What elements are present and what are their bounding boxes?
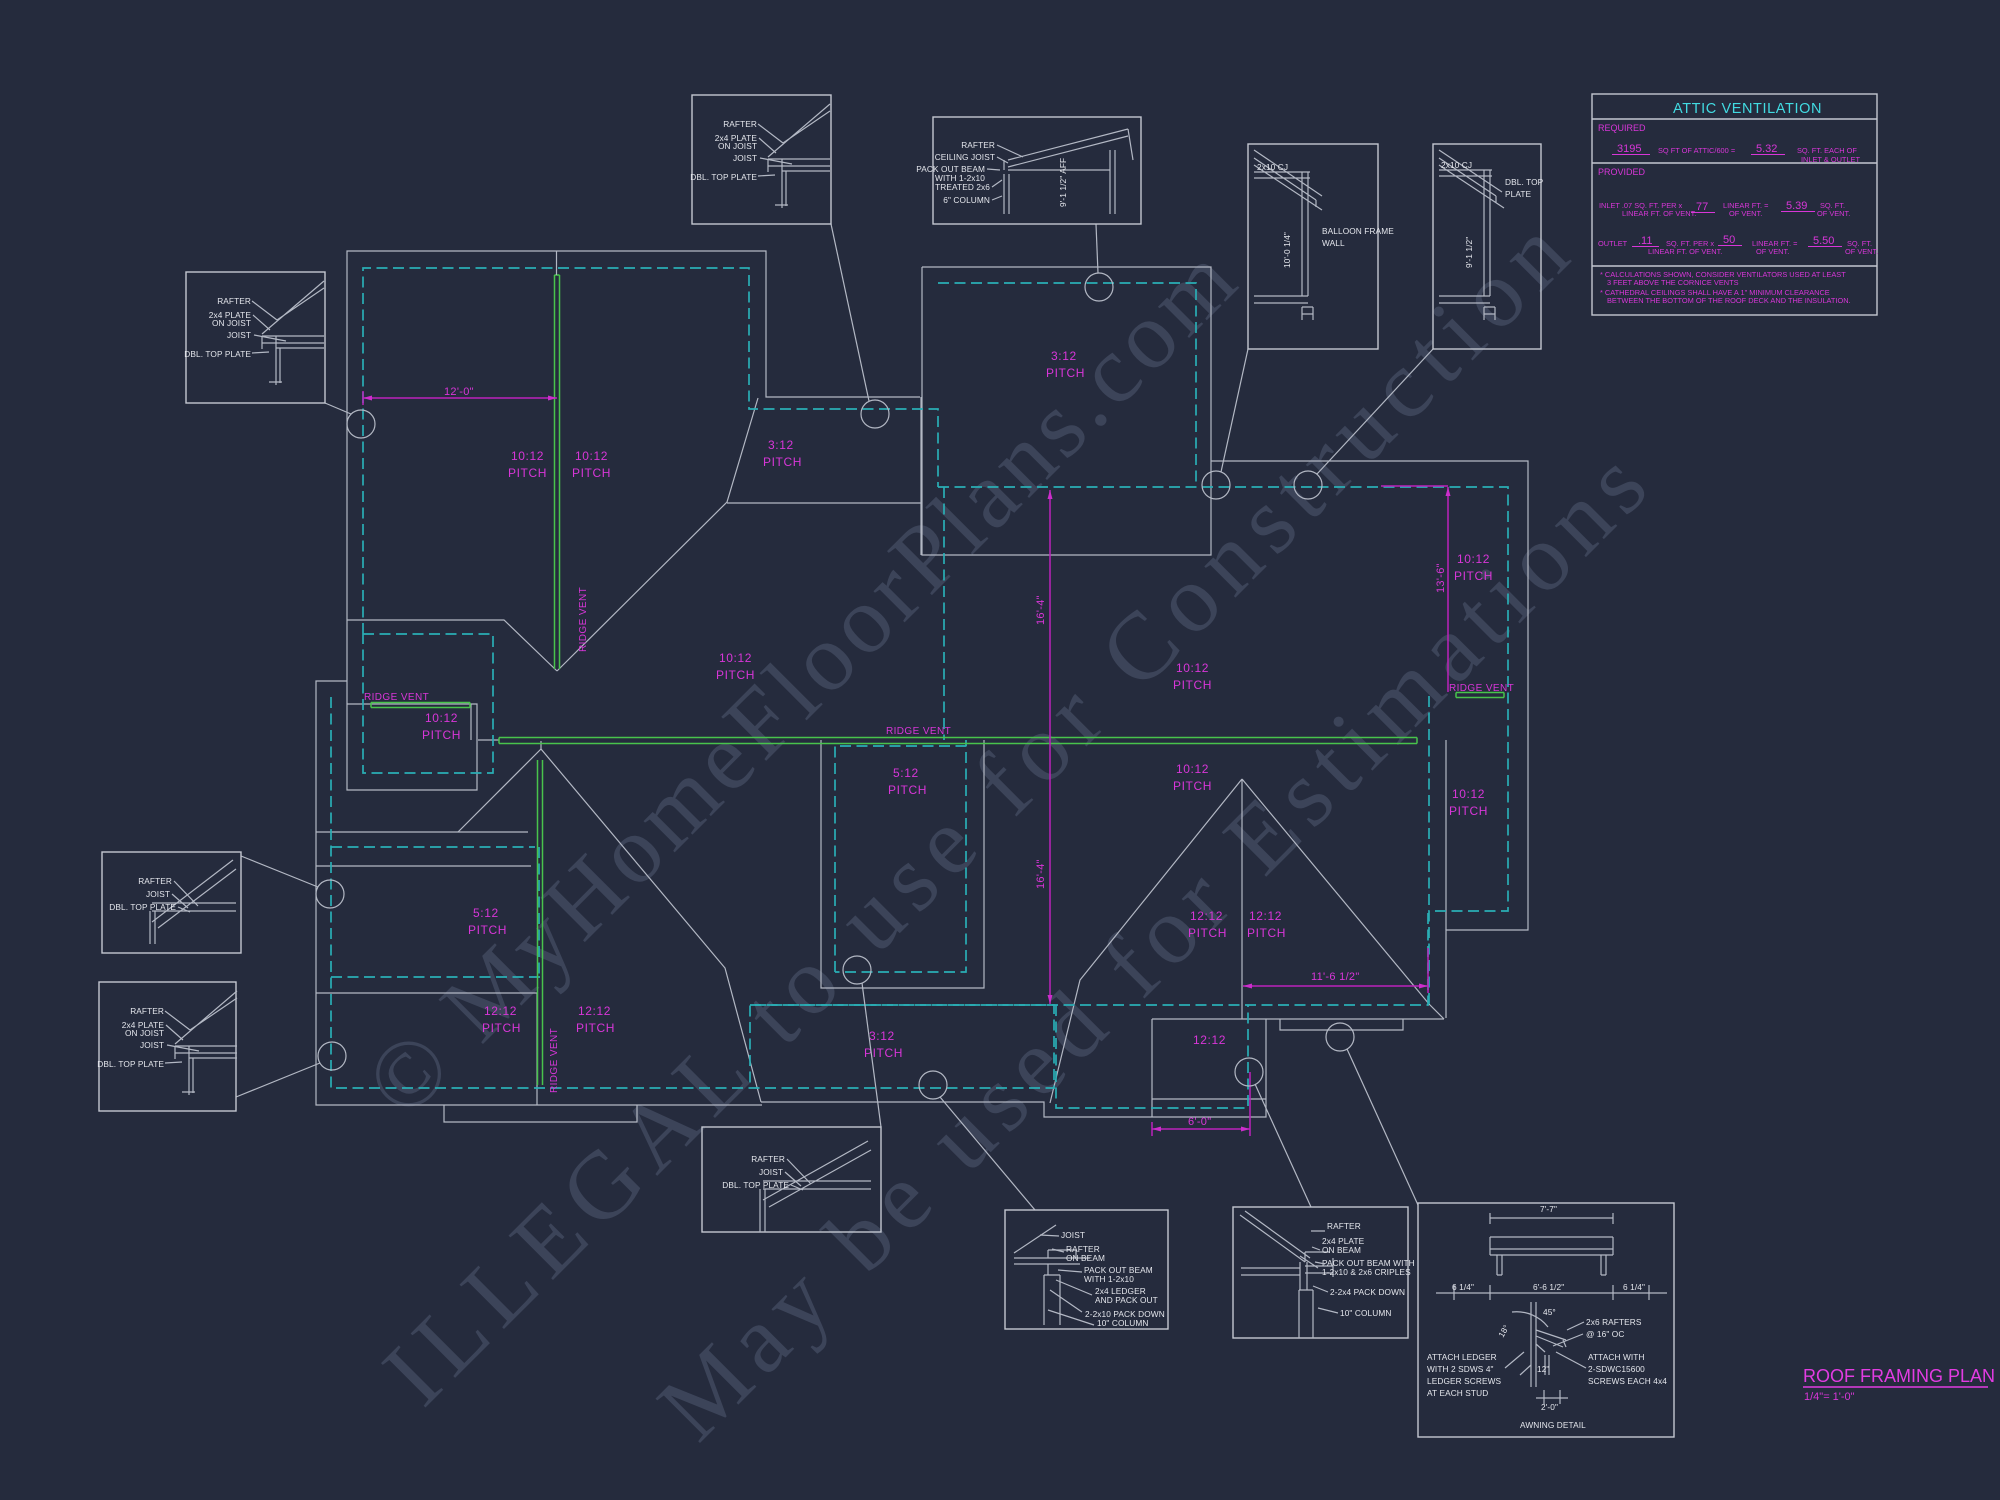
- svg-text:10:12: 10:12: [425, 711, 458, 725]
- svg-text:5.50: 5.50: [1813, 235, 1834, 247]
- svg-text:3 FEET ABOVE THE CORNICE VENTS: 3 FEET ABOVE THE CORNICE VENTS: [1607, 278, 1739, 287]
- svg-text:12:12: 12:12: [1193, 1033, 1226, 1047]
- svg-text:LEDGER SCREWS: LEDGER SCREWS: [1427, 1376, 1502, 1386]
- svg-text:6'-0": 6'-0": [1188, 1116, 1211, 1128]
- svg-text:OF VENT.: OF VENT.: [1817, 209, 1850, 218]
- svg-text:10:12: 10:12: [575, 449, 608, 463]
- svg-text:5:12: 5:12: [893, 766, 919, 780]
- svg-text:12": 12": [1537, 1364, 1549, 1374]
- svg-text:ON BEAM: ON BEAM: [1066, 1253, 1105, 1263]
- svg-text:RIDGE VENT: RIDGE VENT: [364, 692, 429, 703]
- svg-text:5:12: 5:12: [473, 906, 499, 920]
- svg-text:DBL. TOP PLATE: DBL. TOP PLATE: [109, 902, 176, 912]
- svg-text:11'-6 1/2": 11'-6 1/2": [1311, 971, 1360, 983]
- svg-text:DBL. TOP PLATE: DBL. TOP PLATE: [184, 349, 251, 359]
- svg-text:2-SDWC15600: 2-SDWC15600: [1588, 1364, 1645, 1374]
- svg-text:@ 16" OC: @ 16" OC: [1586, 1329, 1624, 1339]
- svg-text:PITCH: PITCH: [1046, 366, 1085, 380]
- svg-text:5.39: 5.39: [1786, 200, 1807, 212]
- svg-text:13'-6": 13'-6": [1435, 563, 1447, 593]
- svg-text:DBL. TOP PLATE: DBL. TOP PLATE: [97, 1059, 164, 1069]
- svg-text:PITCH: PITCH: [1247, 926, 1286, 940]
- svg-text:10" COLUMN: 10" COLUMN: [1097, 1318, 1148, 1328]
- svg-text:ATTACH LEDGER: ATTACH LEDGER: [1427, 1352, 1497, 1362]
- svg-text:JOIST: JOIST: [733, 153, 757, 163]
- svg-text:PITCH: PITCH: [1173, 678, 1212, 692]
- svg-text:PITCH: PITCH: [482, 1021, 521, 1035]
- svg-text:PITCH: PITCH: [763, 455, 802, 469]
- svg-text:2x6 RAFTERS: 2x6 RAFTERS: [1586, 1317, 1642, 1327]
- svg-text:INLET & OUTLET: INLET & OUTLET: [1801, 155, 1860, 164]
- svg-text:RAFTER: RAFTER: [130, 1006, 164, 1016]
- svg-text:6 1/4": 6 1/4": [1452, 1282, 1474, 1292]
- svg-text:1/4"= 1'-0": 1/4"= 1'-0": [1804, 1391, 1855, 1403]
- svg-text:ON BEAM: ON BEAM: [1322, 1245, 1361, 1255]
- svg-text:WITH 1-2x10: WITH 1-2x10: [1084, 1274, 1134, 1284]
- svg-text:AWNING DETAIL: AWNING DETAIL: [1520, 1420, 1586, 1430]
- svg-text:.11: .11: [1638, 235, 1652, 247]
- svg-text:3195: 3195: [1617, 143, 1641, 155]
- svg-text:JOIST: JOIST: [1061, 1230, 1085, 1240]
- svg-text:5.32: 5.32: [1756, 143, 1777, 155]
- svg-text:OF VENT.: OF VENT.: [1845, 247, 1878, 256]
- svg-text:JOIST: JOIST: [759, 1167, 783, 1177]
- svg-text:LINEAR FT. OF VENT.: LINEAR FT. OF VENT.: [1622, 209, 1696, 218]
- svg-text:ON JOIST: ON JOIST: [718, 141, 757, 151]
- svg-text:ATTACH WITH: ATTACH WITH: [1588, 1352, 1645, 1362]
- svg-text:10:12: 10:12: [511, 449, 544, 463]
- svg-text:PITCH: PITCH: [1449, 804, 1488, 818]
- svg-text:16'-4": 16'-4": [1035, 595, 1047, 625]
- svg-text:RIDGE VENT: RIDGE VENT: [1449, 683, 1514, 694]
- svg-text:3:12: 3:12: [869, 1029, 895, 1043]
- svg-text:9'-1 1/2": 9'-1 1/2": [1464, 237, 1474, 268]
- svg-text:RAFTER: RAFTER: [961, 140, 995, 150]
- svg-text:PROVIDED: PROVIDED: [1598, 167, 1646, 177]
- svg-text:RIDGE VENT: RIDGE VENT: [578, 587, 589, 652]
- svg-text:DBL. TOP PLATE: DBL. TOP PLATE: [690, 172, 757, 182]
- svg-text:OF VENT.: OF VENT.: [1756, 247, 1789, 256]
- svg-text:WITH 2 SDWS 4": WITH 2 SDWS 4": [1427, 1364, 1494, 1374]
- svg-text:BALLOON FRAME: BALLOON FRAME: [1322, 226, 1394, 236]
- svg-text:7'-7": 7'-7": [1540, 1204, 1557, 1214]
- svg-text:12:12: 12:12: [578, 1004, 611, 1018]
- svg-text:LINEAR FT. OF VENT.: LINEAR FT. OF VENT.: [1648, 247, 1722, 256]
- svg-text:1-2x10 & 2x6 CRIPLES: 1-2x10 & 2x6 CRIPLES: [1322, 1267, 1411, 1277]
- svg-text:REQUIRED: REQUIRED: [1598, 123, 1646, 133]
- svg-text:6" COLUMN: 6" COLUMN: [943, 195, 990, 205]
- svg-text:PITCH: PITCH: [422, 728, 461, 742]
- svg-text:CEILING JOIST: CEILING JOIST: [935, 152, 995, 162]
- svg-text:10:12: 10:12: [1176, 661, 1209, 675]
- svg-text:RAFTER: RAFTER: [751, 1154, 785, 1164]
- svg-text:SCREWS EACH 4x4: SCREWS EACH 4x4: [1588, 1376, 1667, 1386]
- svg-text:OF VENT.: OF VENT.: [1729, 209, 1762, 218]
- svg-text:16'-4": 16'-4": [1035, 859, 1047, 889]
- svg-text:AND PACK OUT: AND PACK OUT: [1095, 1295, 1158, 1305]
- svg-text:10:12: 10:12: [1176, 762, 1209, 776]
- svg-text:SQ. FT. EACH OF: SQ. FT. EACH OF: [1797, 146, 1857, 155]
- svg-text:50: 50: [1723, 234, 1735, 246]
- svg-text:JOIST: JOIST: [140, 1040, 164, 1050]
- svg-text:SQ FT OF ATTIC/600 =: SQ FT OF ATTIC/600 =: [1658, 146, 1735, 155]
- svg-text:PITCH: PITCH: [468, 923, 507, 937]
- svg-text:ON JOIST: ON JOIST: [125, 1028, 164, 1038]
- svg-text:3:12: 3:12: [768, 438, 794, 452]
- svg-text:PITCH: PITCH: [1454, 569, 1493, 583]
- svg-text:ROOF FRAMING PLAN: ROOF FRAMING PLAN: [1803, 1366, 1995, 1386]
- svg-text:12:12: 12:12: [484, 1004, 517, 1018]
- svg-text:12:12: 12:12: [1190, 909, 1223, 923]
- svg-text:10:12: 10:12: [1457, 552, 1490, 566]
- svg-text:10" COLUMN: 10" COLUMN: [1340, 1308, 1391, 1318]
- svg-text:2-2x4 PACK DOWN: 2-2x4 PACK DOWN: [1330, 1287, 1405, 1297]
- svg-text:DBL. TOP PLATE: DBL. TOP PLATE: [722, 1180, 789, 1190]
- svg-text:10:12: 10:12: [719, 651, 752, 665]
- svg-text:77: 77: [1696, 201, 1708, 213]
- svg-text:6 1/4": 6 1/4": [1623, 1282, 1645, 1292]
- svg-text:3:12: 3:12: [1051, 349, 1077, 363]
- svg-text:RAFTER: RAFTER: [138, 876, 172, 886]
- svg-text:ON JOIST: ON JOIST: [212, 318, 251, 328]
- svg-text:BETWEEN THE BOTTOM OF THE ROOF: BETWEEN THE BOTTOM OF THE ROOF DECK AND …: [1607, 296, 1851, 305]
- svg-text:PITCH: PITCH: [576, 1021, 615, 1035]
- svg-text:6'-6 1/2": 6'-6 1/2": [1533, 1282, 1564, 1292]
- svg-text:9'-1 1/2" AFF: 9'-1 1/2" AFF: [1058, 158, 1068, 207]
- svg-text:10:12: 10:12: [1452, 787, 1485, 801]
- svg-text:12'-0": 12'-0": [444, 386, 474, 398]
- svg-text:12:12: 12:12: [1249, 909, 1282, 923]
- svg-text:PITCH: PITCH: [864, 1046, 903, 1060]
- svg-text:ATTIC VENTILATION: ATTIC VENTILATION: [1673, 101, 1822, 117]
- svg-text:JOIST: JOIST: [227, 330, 251, 340]
- svg-text:PITCH: PITCH: [572, 466, 611, 480]
- svg-text:RIDGE VENT: RIDGE VENT: [549, 1028, 560, 1093]
- svg-text:2x10 CJ: 2x10 CJ: [1257, 162, 1288, 172]
- svg-text:RIDGE VENT: RIDGE VENT: [886, 726, 951, 737]
- svg-text:TREATED 2x6: TREATED 2x6: [935, 182, 990, 192]
- svg-text:PITCH: PITCH: [888, 783, 927, 797]
- svg-text:RAFTER: RAFTER: [723, 119, 757, 129]
- svg-text:DBL. TOP: DBL. TOP: [1505, 177, 1544, 187]
- svg-text:45°: 45°: [1543, 1307, 1556, 1317]
- svg-text:PITCH: PITCH: [1188, 926, 1227, 940]
- svg-text:PITCH: PITCH: [716, 668, 755, 682]
- svg-text:10'-0 1/4": 10'-0 1/4": [1282, 232, 1292, 268]
- svg-text:JOIST: JOIST: [146, 889, 170, 899]
- svg-text:PLATE: PLATE: [1505, 189, 1532, 199]
- svg-text:PITCH: PITCH: [1173, 779, 1212, 793]
- svg-text:2'-0": 2'-0": [1541, 1402, 1558, 1412]
- svg-text:2x10 CJ: 2x10 CJ: [1441, 160, 1472, 170]
- svg-text:WALL: WALL: [1322, 238, 1345, 248]
- svg-text:PITCH: PITCH: [508, 466, 547, 480]
- svg-text:RAFTER: RAFTER: [217, 296, 251, 306]
- svg-text:OUTLET: OUTLET: [1598, 239, 1628, 248]
- svg-text:RAFTER: RAFTER: [1327, 1221, 1361, 1231]
- svg-text:AT EACH STUD: AT EACH STUD: [1427, 1388, 1488, 1398]
